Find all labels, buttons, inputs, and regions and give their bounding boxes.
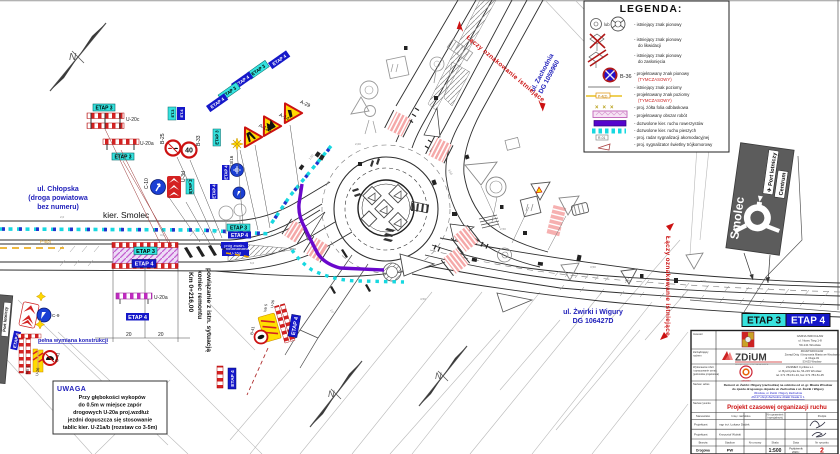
- svg-text:Stanowisko: Stanowisko: [696, 414, 711, 418]
- svg-text:7,00: 7,00: [700, 279, 706, 283]
- svg-text:40: 40: [185, 148, 193, 155]
- svg-text:koniec remontu: koniec remontu: [196, 270, 203, 319]
- svg-text:tablic kier. U-21a/b (rozstaw: tablic kier. U-21a/b (rozstaw co 3-5m): [63, 425, 158, 431]
- svg-text:- dozwolone kier. ruchu rowerz: - dozwolone kier. ruchu rowerzystów: [634, 121, 704, 126]
- svg-text:2,00: 2,00: [355, 142, 361, 146]
- svg-text:ETAP 3: ETAP 3: [230, 225, 247, 231]
- svg-text:Nr rysunku: Nr rysunku: [815, 441, 829, 445]
- svg-text:6,0: 6,0: [250, 261, 255, 265]
- svg-text:Zarząd Dróg i Utrzymania Miast: Zarząd Dróg i Utrzymania Miasta we Wrocł…: [785, 353, 840, 357]
- svg-text:Drogowa: Drogowa: [696, 449, 710, 453]
- svg-text:B-33: B-33: [196, 135, 202, 146]
- svg-text:Skala: Skala: [772, 441, 779, 445]
- svg-text:- dozwolone kier. ruchu pieszy: - dozwolone kier. ruchu pieszych: [634, 128, 697, 133]
- svg-text:2,0: 2,0: [60, 215, 65, 219]
- svg-text:ETAP 4: ETAP 4: [231, 233, 248, 239]
- svg-text:ETAP 3: ETAP 3: [114, 155, 131, 161]
- svg-text:×××: ×××: [595, 105, 618, 111]
- svg-text:ETAP 4: ETAP 4: [128, 315, 148, 321]
- svg-text:U-20a: U-20a: [154, 295, 168, 301]
- svg-text:drogowych U-20a proj.wzdłuż: drogowych U-20a proj.wzdłuż: [73, 410, 149, 416]
- svg-text:B-36: B-36: [620, 74, 632, 80]
- svg-text:Stadium: Stadium: [725, 441, 736, 445]
- svg-text:- projektowany znak poziomy: - projektowany znak poziomy: [634, 92, 690, 97]
- svg-text:Krzysztof Wolski: Krzysztof Wolski: [719, 433, 741, 437]
- svg-text:- istniejący znak pionowy: - istniejący znak pionowy: [634, 22, 682, 27]
- svg-text:ul. Chłopska: ul. Chłopska: [37, 186, 79, 193]
- svg-text:ETAP 4: ETAP 4: [230, 370, 236, 387]
- svg-text:2: 2: [820, 448, 824, 454]
- svg-text:- proj. sygnalizator świetlny: - proj. sygnalizator świetlny trójkomoro…: [634, 142, 713, 147]
- svg-text:AM-17 obręb Zachodnie działki: AM-17 obręb Zachodnie działki Osada nr 1: [751, 395, 805, 399]
- svg-text:ETAP 3: ETAP 3: [136, 249, 155, 255]
- svg-text:ETAP 4: ETAP 4: [135, 262, 155, 268]
- svg-text:pełna wymiana konstrukcji: pełna wymiana konstrukcji: [38, 338, 108, 344]
- svg-text:P-4(2): P-4(2): [598, 94, 607, 98]
- svg-text:1:500: 1:500: [769, 448, 782, 454]
- svg-text:N: N: [69, 52, 77, 63]
- svg-text:4,50: 4,50: [420, 297, 426, 301]
- svg-text:ETAP 3: ETAP 3: [95, 106, 112, 112]
- svg-text:50-141 Wrocław: 50-141 Wrocław: [799, 343, 821, 347]
- svg-text:ETAP 4: ETAP 4: [224, 165, 229, 180]
- svg-text:ETAP 4: ETAP 4: [791, 316, 826, 327]
- svg-text:- istniejący znak pionowy: - istniejący znak pionowy: [634, 53, 682, 58]
- svg-text:Projektant: Projektant: [694, 423, 708, 427]
- svg-text:kier. Smolec: kier. Smolec: [103, 210, 150, 220]
- svg-text:powiązanie z istn. sytuacją: powiązanie z istn. sytuacją: [205, 268, 212, 352]
- svg-text:Przy głębokości wykopów: Przy głębokości wykopów: [79, 395, 147, 401]
- svg-text:lub: lub: [604, 22, 610, 27]
- svg-text:ul. Nowy Targ 1-8: ul. Nowy Targ 1-8: [798, 339, 822, 343]
- svg-text:UWAGA: UWAGA: [57, 386, 86, 393]
- svg-text:2020 r.: 2020 r.: [792, 450, 800, 454]
- svg-text:20: 20: [158, 332, 164, 338]
- svg-text:Łączy oznakowanie istniejące: Łączy oznakowanie istniejące: [664, 236, 671, 336]
- svg-text:ul. Żwirki i Wigury: ul. Żwirki i Wigury: [563, 308, 623, 316]
- svg-text:B-25: B-25: [160, 133, 166, 144]
- svg-text:- projektowany znak pionowy: - projektowany znak pionowy: [634, 71, 690, 76]
- svg-text:C-9: C-9: [52, 313, 60, 318]
- svg-text:próg zwaln.: próg zwaln.: [224, 243, 244, 248]
- svg-text:53-633 Wrocław: 53-633 Wrocław: [803, 360, 822, 364]
- svg-text:ZARZĄD DRÓG I UTRZYMANIA MIAST: ZARZĄD DRÓG I UTRZYMANIA MIASTA: [735, 363, 769, 366]
- svg-text:Branża: Branża: [699, 441, 708, 445]
- svg-text:Projekt czasowej organizacji r: Projekt czasowej organizacji ruchu: [727, 405, 827, 411]
- svg-text:Zarządzający: Zarządzający: [693, 350, 709, 354]
- svg-text:- istniejący znak pionowy: - istniejący znak pionowy: [634, 37, 682, 42]
- svg-text:(TYMCZASOWY): (TYMCZASOWY): [638, 98, 672, 103]
- svg-text:- proj. radar sygnalizacji ako: - proj. radar sygnalizacji akomodacyjnej: [634, 135, 709, 140]
- svg-text:Projektant: Projektant: [694, 433, 708, 437]
- svg-text:i opracowanie oznak.: i opracowanie oznak.: [693, 369, 718, 373]
- svg-text:ZDiUM WROCŁAW: ZDiUM WROCŁAW: [801, 349, 824, 353]
- svg-text:Wykonawca robót: Wykonawca robót: [693, 365, 714, 369]
- svg-text:R-01: R-01: [598, 136, 605, 140]
- svg-text:do likwidacji: do likwidacji: [638, 43, 661, 48]
- svg-text:tel. 071 784-51-34, fax: 071 7: tel. 071 784-51-34, fax: 071 784-51-35: [776, 373, 824, 377]
- svg-text:GMINA WROCŁAW: GMINA WROCŁAW: [797, 334, 824, 338]
- svg-text:Nazwa i adres: Nazwa i adres: [693, 382, 710, 386]
- svg-text:Nazwa rysunku: Nazwa rysunku: [693, 401, 711, 405]
- svg-text:U-20a: U-20a: [140, 141, 154, 147]
- svg-text:PW: PW: [727, 448, 734, 453]
- svg-text:U-20c: U-20c: [126, 117, 140, 123]
- svg-text:Km 0+216,00: Km 0+216,00: [187, 272, 194, 312]
- svg-text:do 0.5m w miejsce zapór: do 0.5m w miejsce zapór: [78, 403, 142, 409]
- svg-text:ETAP 4: ETAP 4: [212, 184, 217, 199]
- svg-text:- projektowany obszar robót: - projektowany obszar robót: [634, 113, 688, 118]
- svg-text:3,50: 3,50: [590, 265, 596, 269]
- svg-text:Inwestor: Inwestor: [693, 332, 703, 336]
- svg-text:ETAP 3: ETAP 3: [215, 130, 220, 145]
- svg-text:ul. Długa 49: ul. Długa 49: [805, 356, 819, 360]
- svg-text:- istniejący znak poziomy: - istniejący znak poziomy: [634, 85, 683, 90]
- svg-text:20: 20: [126, 332, 132, 338]
- svg-text:N: N: [435, 371, 442, 381]
- svg-text:i specjalność: i specjalność: [767, 416, 784, 420]
- svg-text:- proj. żółta folia odblaskowa: - proj. żółta folia odblaskowa: [634, 105, 689, 110]
- svg-text:Podpis: Podpis: [818, 414, 827, 418]
- svg-text:N: N: [328, 389, 335, 399]
- svg-text:Data: Data: [793, 441, 799, 445]
- svg-text:Nr umowy: Nr umowy: [749, 441, 762, 445]
- svg-text:ruchem: ruchem: [693, 354, 702, 358]
- svg-text:ETAP 3: ETAP 3: [747, 316, 782, 327]
- svg-text:LEGENDA:: LEGENDA:: [620, 3, 683, 15]
- svg-text:ET.4: ET.4: [179, 109, 184, 118]
- svg-text:mgr inż. Łukasz Dudek: mgr inż. Łukasz Dudek: [719, 423, 750, 427]
- svg-text:bez numeru): bez numeru): [37, 204, 79, 211]
- svg-text:(jednostka projektowa): (jednostka projektowa): [693, 372, 719, 376]
- svg-text:2,50: 2,50: [500, 227, 506, 231]
- svg-text:ET.3: ET.3: [170, 109, 175, 118]
- svg-text:Imię i nazwisko: Imię i nazwisko: [732, 414, 751, 418]
- svg-text:jezdni dopuszcza się stosowani: jezdni dopuszcza się stosowanie: [67, 418, 152, 424]
- svg-text:do zasłonięcia: do zasłonięcia: [638, 59, 666, 64]
- svg-text:DG 106427D: DG 106427D: [573, 318, 614, 325]
- svg-text:(droga powiatowa: (droga powiatowa: [28, 195, 88, 202]
- svg-text:C-10: C-10: [144, 178, 150, 189]
- svg-text:P-4(b): P-4(b): [40, 239, 52, 244]
- svg-text:3,0: 3,0: [160, 233, 165, 237]
- svg-text:(TYMCZASOWY): (TYMCZASOWY): [638, 77, 672, 82]
